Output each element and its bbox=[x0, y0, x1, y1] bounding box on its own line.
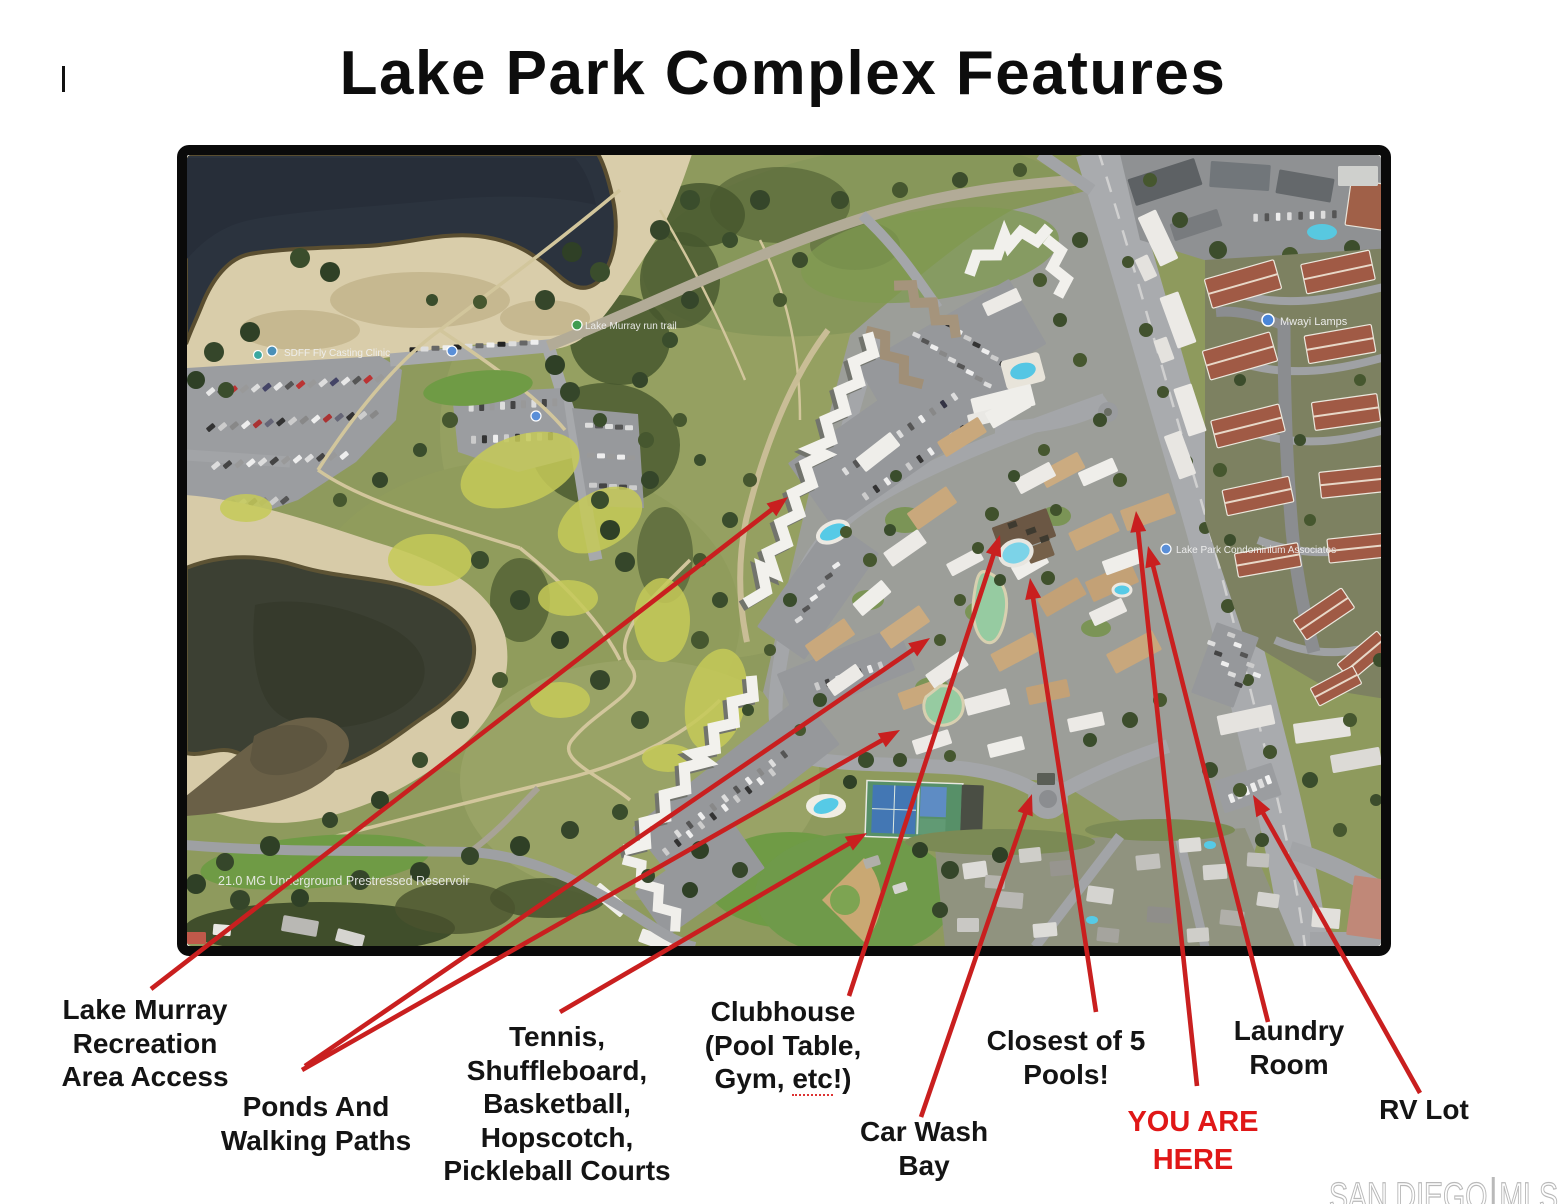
svg-text:Mwayi Lamps: Mwayi Lamps bbox=[1280, 316, 1348, 328]
svg-text:21.0 MG Underground Prestresse: 21.0 MG Underground Prestressed Reservoi… bbox=[218, 874, 470, 888]
svg-text:SDFF Fly Casting Clinic: SDFF Fly Casting Clinic bbox=[284, 348, 390, 359]
svg-text:Lake Park Condominium Associat: Lake Park Condominium Associates bbox=[1176, 545, 1336, 556]
svg-text:Lake Murray run trail: Lake Murray run trail bbox=[585, 321, 677, 332]
